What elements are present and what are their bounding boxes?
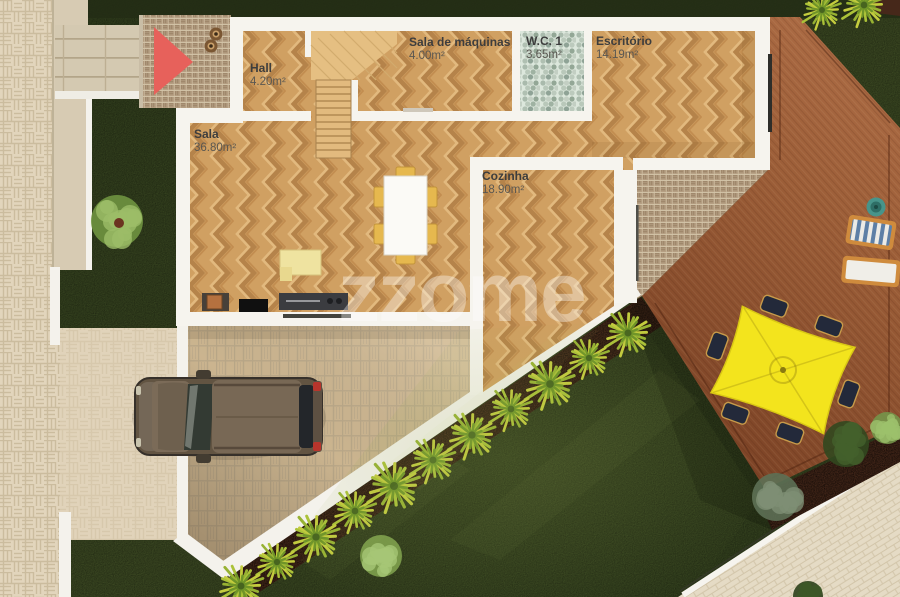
svg-text:3.65m²: 3.65m² <box>526 49 562 61</box>
svg-text:Hall: Hall <box>250 61 272 75</box>
svg-text:Escritório: Escritório <box>596 34 652 48</box>
svg-text:W.C. 1: W.C. 1 <box>526 34 562 48</box>
svg-text:Sala de máquinas: Sala de máquinas <box>409 35 511 49</box>
svg-text:14.19m²: 14.19m² <box>596 49 638 61</box>
svg-text:Sala: Sala <box>194 127 219 141</box>
svg-text:4.00m²: 4.00m² <box>409 50 445 62</box>
svg-text:36.80m²: 36.80m² <box>194 142 236 154</box>
svg-text:4.20m²: 4.20m² <box>250 76 286 88</box>
svg-text:Cozinha: Cozinha <box>482 169 529 183</box>
svg-text:zzome: zzome <box>338 245 585 339</box>
svg-text:18.90m²: 18.90m² <box>482 184 524 196</box>
